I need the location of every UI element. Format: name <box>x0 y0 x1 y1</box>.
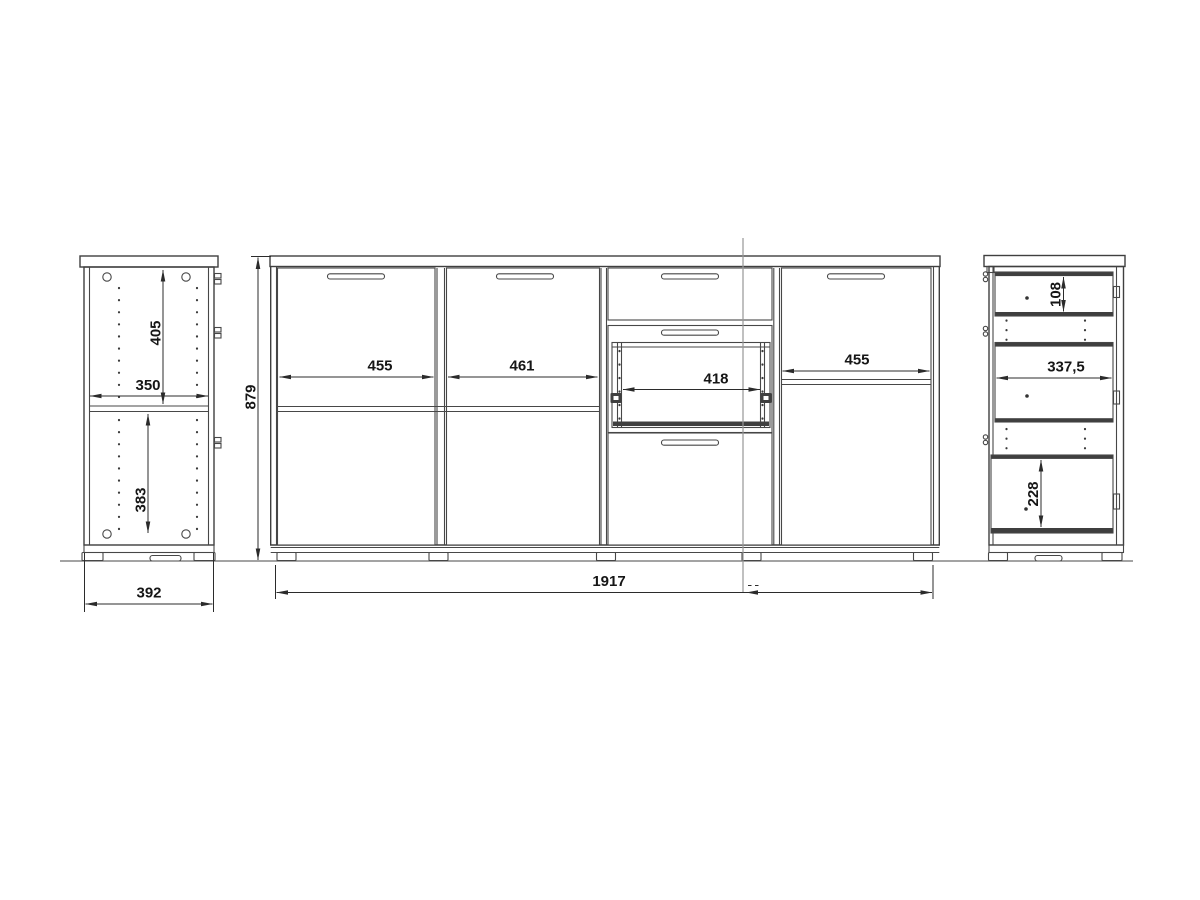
dim-inner-width: 350 <box>90 377 208 396</box>
top-panel <box>984 256 1125 267</box>
dim-label: 455 <box>844 352 869 369</box>
foot <box>742 553 761 561</box>
foot <box>82 553 103 561</box>
technical-drawing-canvas: 405 350 383 392 <box>0 0 1200 900</box>
dim-top-drawer-height: 108 <box>1048 277 1065 312</box>
cam-connector <box>983 326 987 330</box>
plinth <box>84 545 214 553</box>
cam-connector <box>215 328 222 333</box>
drawer-box-bottom-band <box>613 422 769 427</box>
foot <box>429 553 448 561</box>
drawer-front-top <box>608 268 772 320</box>
foot <box>989 553 1008 561</box>
cam-connector <box>215 444 222 449</box>
foot <box>277 553 296 561</box>
dim-label: 418 <box>703 371 728 388</box>
drawer-box-bottom <box>991 455 1113 533</box>
screw-hole <box>1025 394 1029 398</box>
cam-connector <box>983 272 987 276</box>
dim-depth: 392 <box>85 553 214 612</box>
door-right <box>782 268 932 545</box>
cam-connector <box>983 440 987 444</box>
foot <box>597 553 616 561</box>
cam-hole <box>182 273 190 281</box>
runner-clip-slot <box>764 396 769 400</box>
dim-label: 461 <box>509 358 534 375</box>
cam-connector <box>983 277 987 281</box>
drawer-box-band <box>996 418 1113 422</box>
foot <box>1035 556 1062 562</box>
cam-connector <box>215 438 222 443</box>
foot <box>150 556 181 562</box>
dim-label: 1917 <box>592 573 625 590</box>
right-side-view: 108 337,5 228 <box>983 256 1125 562</box>
top-panel <box>270 256 940 267</box>
dim-label: 405 <box>148 320 165 345</box>
top-panel <box>80 256 218 267</box>
cam-connector <box>215 334 222 339</box>
cam-connector <box>983 332 987 336</box>
drawer-box-band <box>992 456 1113 459</box>
screw-hole <box>1024 507 1028 511</box>
cam-connector <box>215 274 222 279</box>
runner-clip-slot <box>614 396 619 400</box>
foot <box>194 553 215 561</box>
left-side-view: 405 350 383 392 <box>80 256 221 612</box>
drawing-svg: 405 350 383 392 <box>0 0 1200 900</box>
drawer-box-middle <box>995 343 1113 423</box>
cam-hole <box>103 530 111 538</box>
screw-hole <box>1025 296 1029 300</box>
dim-label: 350 <box>135 377 160 394</box>
dim-label: 228 <box>1025 481 1042 506</box>
dim-label: 337,5 <box>1047 359 1085 376</box>
front-view: 879 455 461 418 455 1917 <box>243 238 941 599</box>
drawer-box-band <box>996 273 1113 277</box>
dim-height: 879 <box>243 257 272 561</box>
foot <box>1102 553 1122 561</box>
cam-connector <box>983 435 987 439</box>
cam-hole <box>182 530 190 538</box>
dim-label: 879 <box>243 384 260 409</box>
dim-label: 108 <box>1048 282 1065 307</box>
cam-hole <box>103 273 111 281</box>
drawer-front-bottom <box>608 433 772 545</box>
drawer-box-band <box>996 312 1113 316</box>
dim-label: 383 <box>133 487 150 512</box>
plinth <box>989 545 1124 553</box>
drawer-box-open <box>612 343 770 428</box>
cam-connector <box>215 280 222 285</box>
drawer-box-band <box>996 343 1113 347</box>
dim-lower-inner-height: 383 <box>133 414 150 533</box>
foot <box>914 553 933 561</box>
drawer-box-band <box>992 528 1113 533</box>
dim-label: 455 <box>367 358 392 375</box>
dim-label: 392 <box>136 585 161 602</box>
dim-total-width: 1917 <box>276 565 934 599</box>
